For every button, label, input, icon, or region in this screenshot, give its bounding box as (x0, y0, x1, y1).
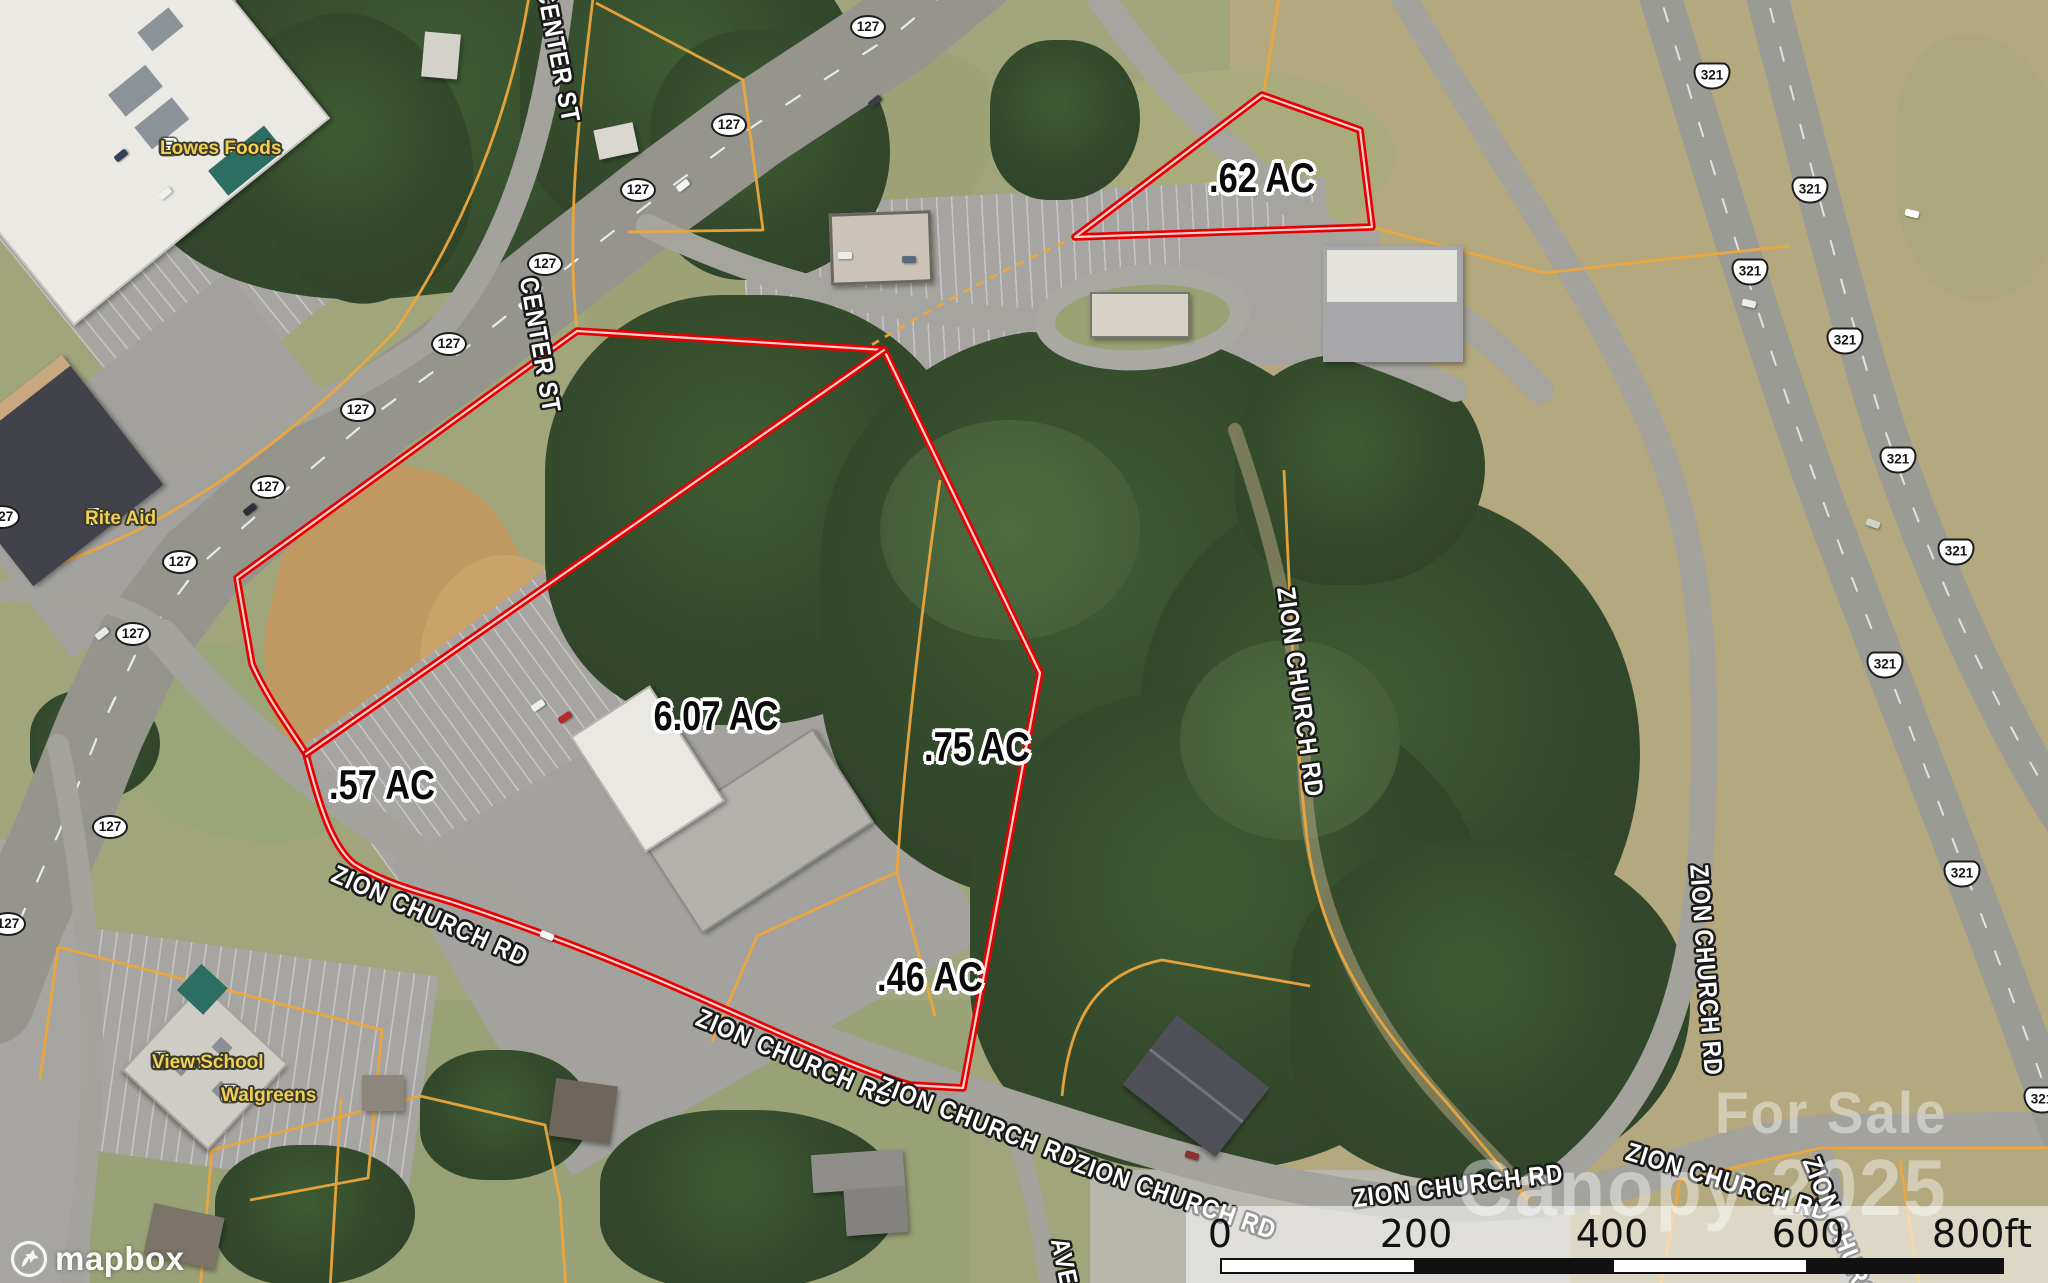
scale-tick-label: 600 (1772, 1212, 1845, 1256)
parcel-acreage-label: .62 AC (1209, 154, 1315, 202)
building-restaurant (829, 210, 933, 286)
map-canvas[interactable]: 1271271271271271271271271271271271273213… (0, 0, 2048, 1283)
parcel-acreage-label: .75 AC (924, 723, 1030, 771)
scale-tick-label: 0 (1208, 1212, 1232, 1256)
scale-bar-segment (1612, 1258, 1808, 1274)
rooftop-unit (137, 7, 183, 51)
scale-bar-segment (1808, 1258, 2004, 1274)
route-127-shield: 127 (340, 398, 376, 422)
parcel-acreage-label: 6.07 AC (653, 692, 778, 740)
route-127-shield: 127 (711, 113, 747, 137)
road-zion-north (1388, 0, 1704, 1200)
building-house (843, 1186, 908, 1236)
vehicle (838, 252, 852, 259)
sale-parcel-outlines (237, 95, 1372, 1088)
building-shed (421, 32, 461, 80)
poi-label-text: Rite Aid (85, 508, 156, 529)
scale-bar-segment (1416, 1258, 1612, 1274)
building-strip-retail (1323, 246, 1463, 362)
roof-section (1327, 250, 1457, 302)
poi-label-text: View School (152, 1052, 264, 1073)
route-127-shield: 127 (92, 815, 128, 839)
scale-bar: 0200400600800ft (1186, 1206, 2048, 1283)
route-127-shield: 127 (527, 252, 563, 276)
poi-label-text: Lowes Foods (160, 138, 281, 159)
route-127-shield: 127 (162, 550, 198, 574)
route-127-shield: 127 (250, 475, 286, 499)
parcel-acreage-label: .46 AC (877, 953, 983, 1001)
route-127-shield: 127 (431, 332, 467, 356)
rooftop-unit (108, 65, 163, 117)
route-127-shield: 127 (115, 622, 151, 646)
building-house (362, 1075, 404, 1111)
mapbox-wordmark: mapbox (55, 1240, 185, 1278)
roof-ridge (1149, 1048, 1244, 1123)
mapbox-icon (10, 1240, 48, 1278)
scale-tick-label: 400 (1576, 1212, 1649, 1256)
parcel-acreage-label: .57 AC (329, 761, 435, 809)
mapbox-logo[interactable]: mapbox (10, 1240, 185, 1278)
building-house (548, 1078, 617, 1144)
watermark-line1: For Sale (1458, 1082, 1948, 1146)
scale-tick-label: 200 (1380, 1212, 1453, 1256)
route-127-shield: 127 (850, 15, 886, 39)
scale-bar-segment (1220, 1258, 1416, 1274)
scale-tick-label: 800ft (1932, 1212, 2032, 1256)
building-restaurant (1090, 292, 1190, 338)
vehicle (902, 256, 916, 263)
route-127-shield: 127 (620, 178, 656, 202)
poi-label-text: Walgreens (221, 1085, 316, 1106)
